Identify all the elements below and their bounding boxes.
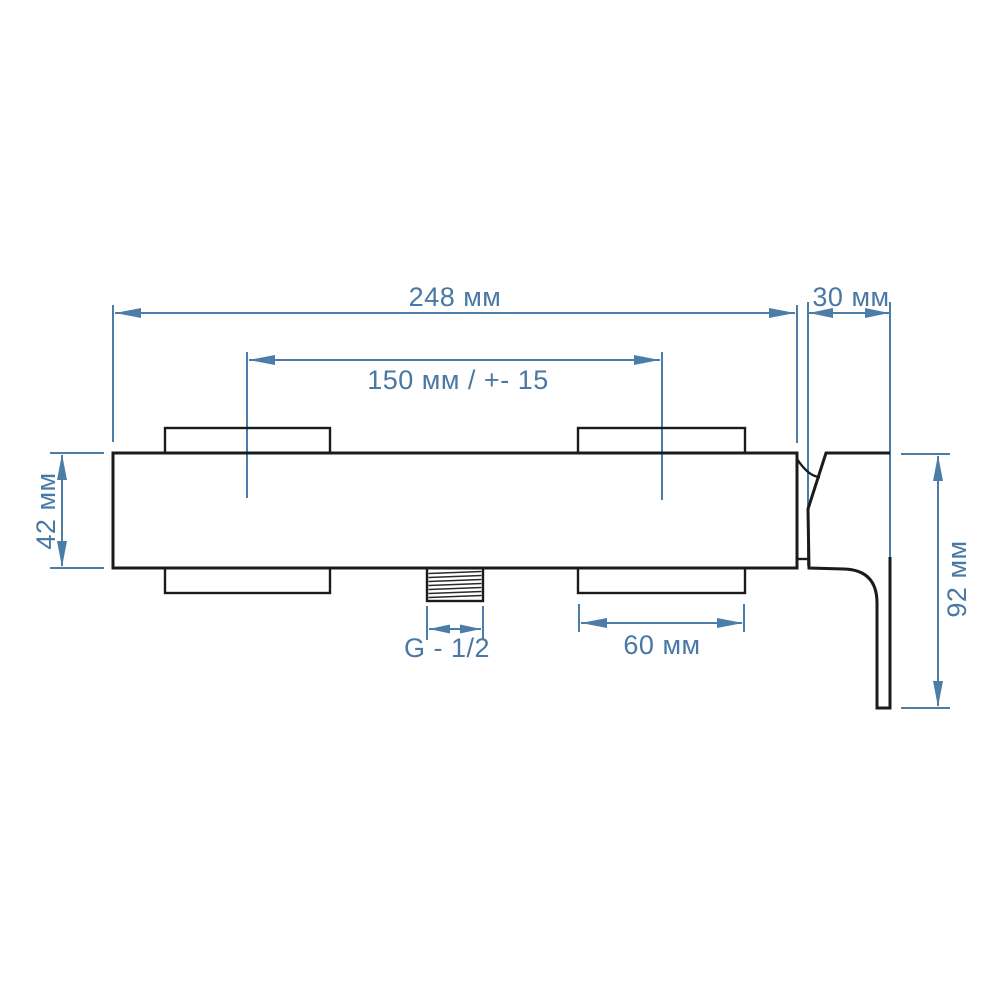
arrow-spacing-right xyxy=(634,355,660,365)
mount-block-bottom-right xyxy=(578,568,745,593)
label-total-width: 248 мм xyxy=(409,282,502,312)
label-outlet-thread: G - 1/2 xyxy=(404,633,490,663)
faucet-technical-drawing: 248 мм 30 мм 150 мм / +- 15 42 мм 92 мм … xyxy=(0,0,1000,1000)
mount-block-bottom-left xyxy=(165,568,330,593)
thread-hatch xyxy=(429,572,482,598)
label-wall-offset: 30 мм xyxy=(812,282,889,312)
label-handle-drop: 92 мм xyxy=(942,540,972,617)
arrow-handle-top xyxy=(933,455,943,481)
label-hole-spacing: 150 мм / +- 15 xyxy=(367,365,548,395)
lever-handle xyxy=(808,453,890,708)
arrow-handle-bottom xyxy=(933,681,943,707)
extension-lines xyxy=(50,302,950,708)
arrow-total-left xyxy=(115,308,141,318)
label-mount-width: 60 мм xyxy=(623,630,700,660)
arrow-spacing-left xyxy=(249,355,275,365)
drawing-canvas: 248 мм 30 мм 150 мм / +- 15 42 мм 92 мм … xyxy=(0,0,1000,1000)
faucet-outline xyxy=(113,428,890,708)
faucet-body-bar xyxy=(113,453,797,568)
label-body-height: 42 мм xyxy=(31,472,61,549)
arrow-mount-left xyxy=(581,618,607,628)
arrow-mount-right xyxy=(717,618,743,628)
arrow-total-right xyxy=(769,308,795,318)
dimension-labels: 248 мм 30 мм 150 мм / +- 15 42 мм 92 мм … xyxy=(31,282,972,663)
